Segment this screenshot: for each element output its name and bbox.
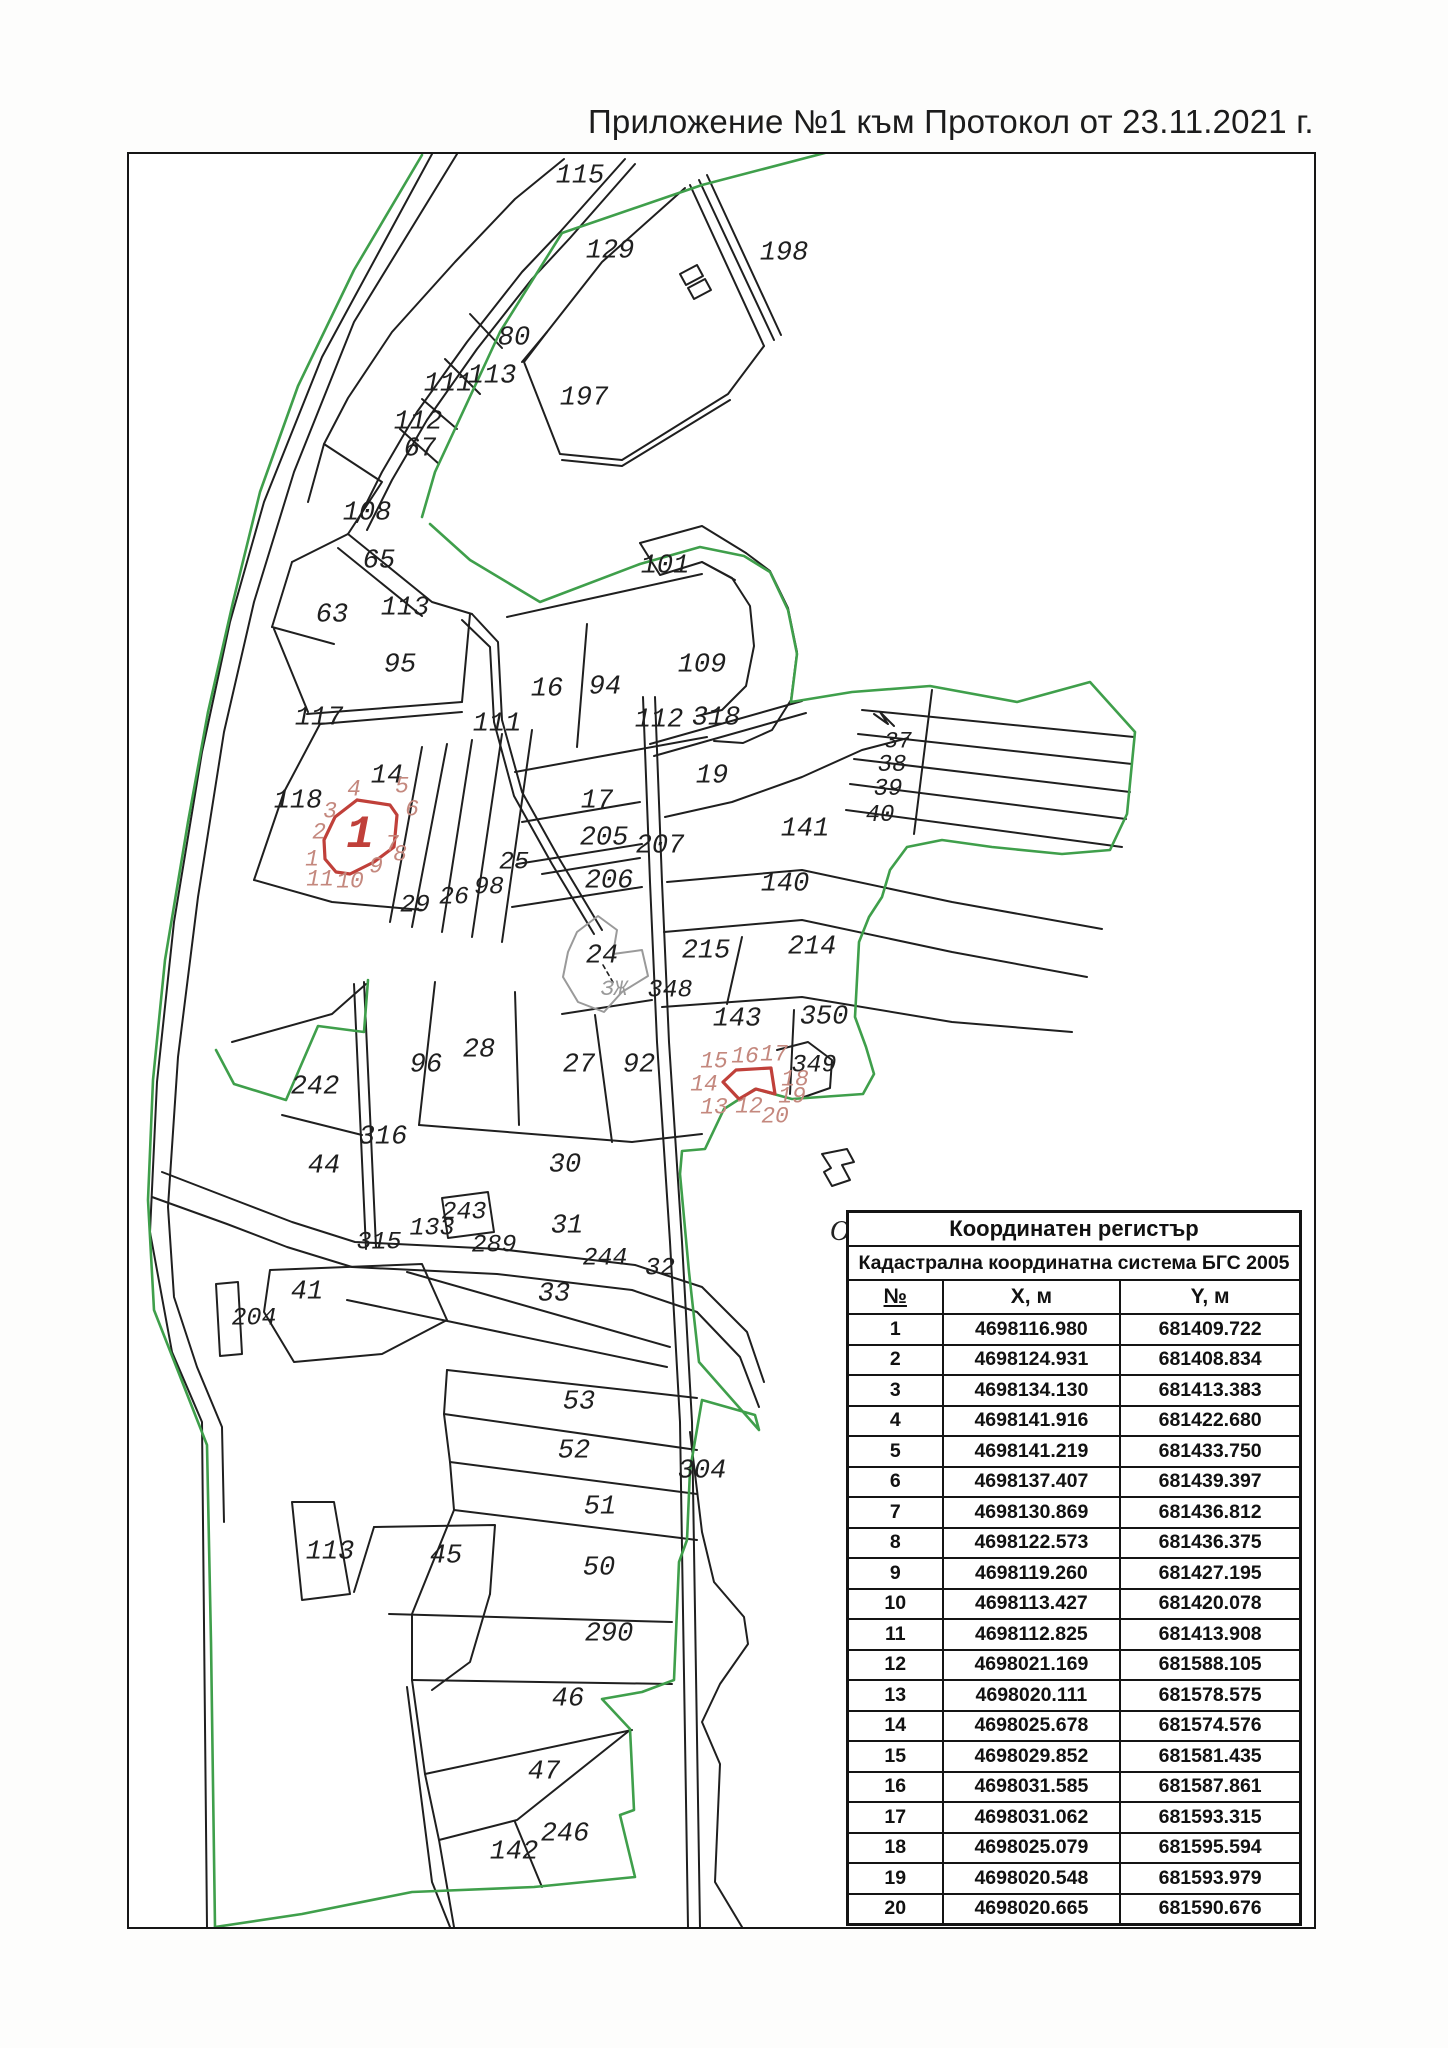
parcel-number-label: 206 — [585, 869, 634, 896]
parcel-number-label: 315 — [356, 1230, 401, 1255]
cell-x-coordinate: 4698021.169 — [944, 1651, 1122, 1680]
parcel-number-label: 33 — [538, 1282, 570, 1309]
cell-y-coordinate: 681587.861 — [1121, 1773, 1299, 1802]
cell-point-number: 11 — [849, 1620, 944, 1649]
cell-x-coordinate: 4698020.665 — [944, 1895, 1122, 1924]
cell-point-number: 5 — [849, 1437, 944, 1466]
parcel-boundary-line — [667, 870, 1102, 929]
parcel-number-label: 45 — [430, 1544, 462, 1571]
table-row: 154698029.852681581.435 — [849, 1742, 1299, 1773]
cell-x-coordinate: 4698130.869 — [944, 1498, 1122, 1527]
parcel-boundary-line — [822, 1149, 854, 1186]
page-title: Приложение №1 към Протокол от 23.11.2021… — [588, 103, 1318, 141]
table-row: 164698031.585681587.861 — [849, 1773, 1299, 1804]
table-row: 134698020.111681578.575 — [849, 1681, 1299, 1712]
parcel-number-label: 39 — [874, 778, 903, 802]
parcel-number-label: 205 — [580, 826, 629, 853]
coordinate-table-title: Координатен регистър — [849, 1213, 1299, 1247]
parcel-number-label: 19 — [696, 764, 728, 791]
parcel-number-label: 289 — [471, 1233, 516, 1258]
table-row: 24698124.931681408.834 — [849, 1346, 1299, 1377]
cell-y-coordinate: 681436.375 — [1121, 1529, 1299, 1558]
cell-point-number: 8 — [849, 1529, 944, 1558]
parcel-boundary-line — [347, 1300, 667, 1367]
survey-point-label: 1 — [346, 812, 374, 858]
cell-y-coordinate: 681588.105 — [1121, 1651, 1299, 1680]
parcel-boundary-line — [562, 1000, 652, 1014]
parcel-boundary-line — [515, 737, 707, 772]
parcel-number-label: 40 — [866, 804, 895, 828]
parcel-boundary-line — [272, 562, 292, 627]
survey-point-label: 16 — [731, 1046, 759, 1069]
table-row: 44698141.916681422.680 — [849, 1407, 1299, 1438]
parcel-boundary-line — [232, 984, 366, 1042]
cell-y-coordinate: 681409.722 — [1121, 1315, 1299, 1344]
parcel-number-label: 113 — [468, 364, 517, 391]
parcel-number-label: 44 — [308, 1154, 340, 1181]
cell-point-number: 12 — [849, 1651, 944, 1680]
parcel-number-label: 25 — [499, 850, 529, 875]
cell-y-coordinate: 681422.680 — [1121, 1407, 1299, 1436]
parcel-number-label: 112 — [394, 410, 443, 437]
parcel-number-label: 92 — [623, 1053, 655, 1080]
parcel-number-label: 30 — [549, 1153, 581, 1180]
parcel-number-label: 111 — [424, 372, 473, 399]
survey-point-label: 15 — [700, 1051, 728, 1074]
parcel-boundary-line — [515, 992, 519, 1125]
parcel-number-label: 16 — [531, 677, 563, 704]
cell-x-coordinate: 4698119.260 — [944, 1559, 1122, 1588]
cell-y-coordinate: 681408.834 — [1121, 1346, 1299, 1375]
parcel-number-label: 108 — [343, 501, 392, 528]
territory-boundary-line — [148, 155, 422, 1927]
parcel-number-label: 46 — [552, 1687, 584, 1714]
table-row: 174698031.062681593.315 — [849, 1803, 1299, 1834]
parcel-number-label: 242 — [291, 1075, 340, 1102]
parcel-number-label: ЗЖ — [601, 979, 627, 1001]
cell-x-coordinate: 4698025.678 — [944, 1712, 1122, 1741]
table-row: 64698137.407681439.397 — [849, 1468, 1299, 1499]
cell-y-coordinate: 681590.676 — [1121, 1895, 1299, 1924]
cell-x-coordinate: 4698134.130 — [944, 1376, 1122, 1405]
parcel-boundary-line — [577, 624, 587, 747]
parcel-boundary-line — [595, 1015, 612, 1142]
scanned-protocol-appendix-page: { "title": "Приложение №1 към Протокол о… — [0, 0, 1448, 2048]
parcel-number-label: 244 — [582, 1246, 627, 1271]
parcel-boundary-line — [472, 734, 502, 937]
cell-point-number: 10 — [849, 1590, 944, 1619]
parcel-number-label: 47 — [528, 1760, 560, 1787]
parcel-boundary-line — [357, 159, 625, 522]
parcel-number-label: 113 — [306, 1540, 355, 1567]
parcel-number-label: 316 — [359, 1125, 408, 1152]
parcel-number-label: 143 — [713, 1007, 762, 1034]
parcel-number-label: 113 — [381, 596, 430, 623]
parcel-number-label: 111 — [473, 712, 522, 739]
parcel-number-label: 101 — [641, 554, 690, 581]
survey-point-label: 12 — [735, 1096, 763, 1119]
cell-point-number: 19 — [849, 1864, 944, 1893]
parcel-number-label: 115 — [556, 164, 605, 191]
parcel-number-label: 41 — [291, 1280, 323, 1307]
parcel-number-label: 17 — [581, 789, 613, 816]
parcel-boundary-line — [432, 1594, 490, 1690]
parcel-number-label: 98 — [474, 875, 504, 900]
parcel-number-label: 24 — [586, 944, 618, 971]
cell-x-coordinate: 4698137.407 — [944, 1468, 1122, 1497]
cell-point-number: 14 — [849, 1712, 944, 1741]
parcel-boundary-line — [274, 629, 308, 712]
cell-point-number: 3 — [849, 1376, 944, 1405]
parcel-number-label: 129 — [586, 239, 635, 266]
parcel-number-label: 37 — [884, 731, 912, 754]
cell-point-number: 2 — [849, 1346, 944, 1375]
cell-x-coordinate: 4698029.852 — [944, 1742, 1122, 1771]
survey-point-label: 10 — [336, 871, 364, 894]
table-row: 104698113.427681420.078 — [849, 1590, 1299, 1621]
parcel-number-label: 304 — [678, 1459, 727, 1486]
parcel-number-label: 51 — [584, 1495, 616, 1522]
cell-point-number: 15 — [849, 1742, 944, 1771]
table-row: 184698025.079681595.594 — [849, 1834, 1299, 1865]
survey-point-label: 13 — [700, 1097, 728, 1120]
parcel-boundary-line — [419, 1125, 702, 1142]
coordinate-table-body: 14698116.980681409.72224698124.931681408… — [849, 1315, 1299, 1923]
cell-point-number: 4 — [849, 1407, 944, 1436]
cell-x-coordinate: 4698031.062 — [944, 1803, 1122, 1832]
cell-y-coordinate: 681433.750 — [1121, 1437, 1299, 1466]
parcel-number-label: 52 — [558, 1439, 590, 1466]
survey-point-label: 7 — [385, 834, 399, 857]
parcel-number-label: 67 — [404, 437, 436, 464]
parcel-boundary-line — [690, 185, 764, 346]
parcel-number-label: 28 — [463, 1038, 495, 1065]
cell-y-coordinate: 681595.594 — [1121, 1834, 1299, 1863]
parcel-number-label: 350 — [800, 1005, 849, 1032]
parcel-number-label: 117 — [295, 706, 344, 733]
cell-y-coordinate: 681578.575 — [1121, 1681, 1299, 1710]
cell-x-coordinate: 4698116.980 — [944, 1315, 1122, 1344]
parcel-number-label: 53 — [563, 1390, 595, 1417]
table-row: 94698119.260681427.195 — [849, 1559, 1299, 1590]
parcel-number-label: 141 — [781, 817, 830, 844]
table-row: 54698141.219681433.750 — [849, 1437, 1299, 1468]
parcel-number-label: 140 — [761, 872, 810, 899]
cell-x-coordinate: 4698031.585 — [944, 1773, 1122, 1802]
table-row: 124698021.169681588.105 — [849, 1651, 1299, 1682]
table-row: 144698025.678681574.576 — [849, 1712, 1299, 1743]
cell-y-coordinate: 681581.435 — [1121, 1742, 1299, 1771]
survey-point-label: 11 — [306, 869, 334, 892]
parcel-number-label: 207 — [636, 834, 685, 861]
parcel-number-label: 26 — [439, 885, 469, 910]
parcel-number-label: 65 — [363, 549, 395, 576]
parcel-boundary-line — [354, 1527, 374, 1592]
parcel-number-label: 133 — [409, 1216, 454, 1241]
parcel-number-label: 94 — [589, 675, 621, 702]
survey-point-label: 6 — [405, 799, 419, 822]
cell-x-coordinate: 4698025.079 — [944, 1834, 1122, 1863]
cell-y-coordinate: 681413.908 — [1121, 1620, 1299, 1649]
parcel-boundary-line — [292, 534, 348, 562]
parcel-boundary-line — [502, 730, 532, 942]
territory-boundary-line — [422, 154, 840, 517]
parcel-number-label: 32 — [645, 1256, 675, 1281]
cell-x-coordinate: 4698020.548 — [944, 1864, 1122, 1893]
cell-y-coordinate: 681593.979 — [1121, 1864, 1299, 1893]
cell-y-coordinate: 681574.576 — [1121, 1712, 1299, 1741]
cell-x-coordinate: 4698141.916 — [944, 1407, 1122, 1436]
cell-point-number: 7 — [849, 1498, 944, 1527]
parcel-number-label: 318 — [692, 706, 741, 733]
parcel-number-label: 348 — [647, 978, 692, 1003]
parcel-boundary-line — [412, 1370, 454, 1927]
cell-x-coordinate: 4698113.427 — [944, 1590, 1122, 1619]
parcel-boundary-line — [150, 154, 432, 1927]
parcel-number-label: 96 — [410, 1053, 442, 1080]
parcel-boundary-line — [874, 712, 894, 726]
survey-point-label: 4 — [347, 779, 361, 802]
survey-point-label: 14 — [690, 1074, 718, 1097]
cell-point-number: 20 — [849, 1895, 944, 1924]
parcel-number-label: 197 — [560, 386, 609, 413]
cell-y-coordinate: 681436.812 — [1121, 1498, 1299, 1527]
cell-y-coordinate: 681427.195 — [1121, 1559, 1299, 1588]
table-row: 34698134.130681413.383 — [849, 1376, 1299, 1407]
cell-point-number: 6 — [849, 1468, 944, 1497]
cell-x-coordinate: 4698020.111 — [944, 1681, 1122, 1710]
coordinate-table-header: № X, м Y, м — [849, 1281, 1299, 1315]
cell-point-number: 16 — [849, 1773, 944, 1802]
cell-point-number: 17 — [849, 1803, 944, 1832]
cell-x-coordinate: 4698141.219 — [944, 1437, 1122, 1466]
column-header-y: Y, м — [1121, 1281, 1299, 1313]
parcel-boundary-line — [152, 1197, 759, 1407]
cell-y-coordinate: 681593.315 — [1121, 1803, 1299, 1832]
survey-point-label: 9 — [369, 856, 383, 879]
table-row: 204698020.665681590.676 — [849, 1895, 1299, 1924]
cell-point-number: 9 — [849, 1559, 944, 1588]
table-row: 14698116.980681409.722 — [849, 1315, 1299, 1346]
parcel-number-label: 118 — [274, 789, 323, 816]
survey-point-label: 20 — [761, 1106, 789, 1129]
cell-x-coordinate: 4698112.825 — [944, 1620, 1122, 1649]
parcel-number-label: 215 — [682, 939, 731, 966]
parcel-number-label: 50 — [583, 1556, 615, 1583]
cell-point-number: 1 — [849, 1315, 944, 1344]
cell-point-number: 18 — [849, 1834, 944, 1863]
coordinate-table: Координатен регистър Кадастрална координ… — [846, 1210, 1302, 1926]
survey-point-label: 2 — [312, 822, 326, 845]
parcel-number-label: 109 — [678, 653, 727, 680]
table-row: 114698112.825681413.908 — [849, 1620, 1299, 1651]
survey-point-label: 5 — [395, 776, 409, 799]
parcel-boundary-line — [412, 1680, 672, 1684]
parcel-number-label: 95 — [384, 653, 416, 680]
parcel-number-label: 214 — [788, 935, 837, 962]
parcel-number-label: 63 — [316, 603, 348, 630]
parcel-number-label: 142 — [490, 1840, 539, 1867]
parcel-number-label: 290 — [585, 1622, 634, 1649]
parcel-boundary-line — [697, 562, 754, 716]
cell-point-number: 13 — [849, 1681, 944, 1710]
parcel-number-label: 38 — [878, 754, 907, 778]
parcel-number-label: 198 — [760, 241, 809, 268]
column-header-x: X, м — [944, 1281, 1122, 1313]
parcel-number-label: 31 — [551, 1214, 583, 1241]
cell-y-coordinate: 681420.078 — [1121, 1590, 1299, 1619]
coordinate-table-subtitle: Кадастрална координатна система БГС 2005 — [849, 1247, 1299, 1281]
parcel-number-label: 27 — [563, 1053, 595, 1080]
parcel-boundary-line — [914, 690, 932, 834]
parcel-number-label: 246 — [541, 1822, 590, 1849]
table-row: 194698020.548681593.979 — [849, 1864, 1299, 1895]
parcel-number-label: 29 — [400, 893, 430, 918]
cell-x-coordinate: 4698122.573 — [944, 1529, 1122, 1558]
cell-x-coordinate: 4698124.931 — [944, 1346, 1122, 1375]
column-header-num: № — [849, 1281, 944, 1313]
cell-y-coordinate: 681439.397 — [1121, 1468, 1299, 1497]
table-row: 84698122.573681436.375 — [849, 1529, 1299, 1560]
survey-point-label: 17 — [760, 1044, 788, 1067]
parcel-boundary-line — [522, 188, 685, 362]
parcel-boundary-line — [450, 1462, 697, 1494]
parcel-number-label: 80 — [498, 326, 530, 353]
parcel-number-label: 204 — [231, 1306, 276, 1331]
table-row: 74698130.869681436.812 — [849, 1498, 1299, 1529]
parcel-boundary-line — [282, 1115, 362, 1135]
parcel-number-label: 112 — [635, 708, 684, 735]
cell-y-coordinate: 681413.383 — [1121, 1376, 1299, 1405]
